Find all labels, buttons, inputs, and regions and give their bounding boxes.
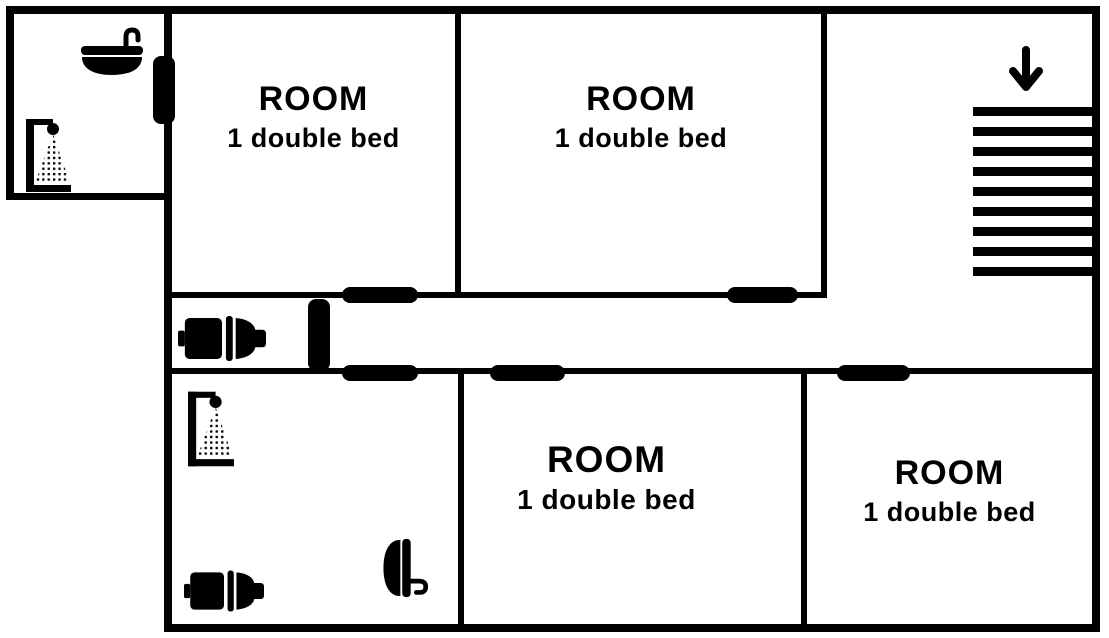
room-label-bottom-middle: ROOM 1 double bed xyxy=(438,438,775,518)
door-bathroom-bottom-left xyxy=(342,365,418,381)
room-label-top-right: ROOM 1 double bed xyxy=(461,78,821,156)
stairs-treads xyxy=(973,107,1092,277)
door-room-bottom-middle xyxy=(490,365,565,381)
room-subtitle: 1 double bed xyxy=(172,120,455,156)
wall-top-right-room-right xyxy=(821,14,827,298)
shower-icon xyxy=(188,391,236,467)
stairs-down-arrow-icon xyxy=(1004,46,1048,94)
room-label-top-left: ROOM 1 double bed xyxy=(172,78,455,156)
room-subtitle: 1 double bed xyxy=(438,482,775,518)
wall-outer-bottom xyxy=(164,624,1100,632)
toilet-icon xyxy=(184,570,264,612)
wall-bath-tl-bottom xyxy=(6,193,172,200)
door-room-top-left xyxy=(342,287,418,303)
floor-plan: ROOM 1 double bed ROOM 1 double bed ROOM… xyxy=(0,0,1109,638)
sink-icon xyxy=(79,27,145,75)
door-room-bottom-right xyxy=(837,365,910,381)
wall-bath-tl-left xyxy=(6,6,14,200)
shower-icon xyxy=(26,119,73,192)
room-title: ROOM xyxy=(172,78,455,120)
door-room-top-right xyxy=(727,287,798,303)
room-title: ROOM xyxy=(438,438,775,482)
room-subtitle: 1 double bed xyxy=(461,120,821,156)
room-subtitle: 1 double bed xyxy=(807,494,1092,530)
toilet-icon xyxy=(178,316,266,361)
door-wc xyxy=(308,299,330,371)
wall-outer-right xyxy=(1092,6,1100,632)
wall-top-rooms-divider xyxy=(455,14,461,298)
room-title: ROOM xyxy=(807,452,1092,494)
sink-icon xyxy=(383,537,429,599)
room-title: ROOM xyxy=(461,78,821,120)
room-label-bottom-right: ROOM 1 double bed xyxy=(807,452,1092,530)
